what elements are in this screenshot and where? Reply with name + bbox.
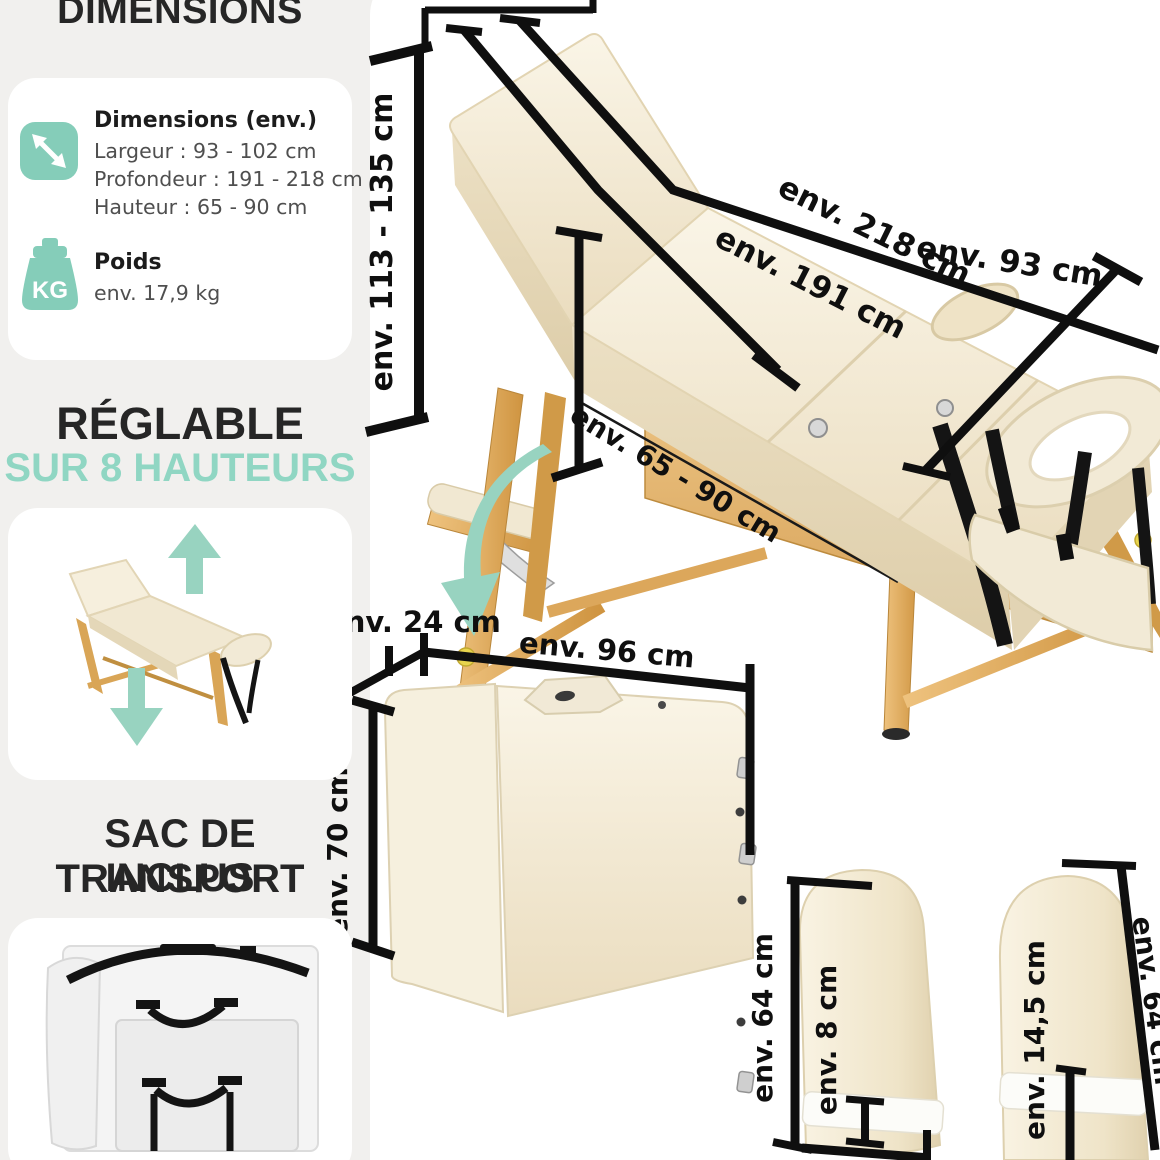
height-dimension-label: env. 113 - 135 cm (365, 93, 400, 392)
sidebar: DIMENSIONS Dimensions (env.) Largeur : 9… (0, 0, 362, 1160)
spec-hauteur: Hauteur : 65 - 90 cm (94, 193, 363, 221)
specs-box: Dimensions (env.) Largeur : 93 - 102 cm … (8, 78, 352, 360)
mini-table (70, 560, 275, 726)
metal-latch (809, 419, 827, 437)
spec-profondeur: Profondeur : 191 - 218 cm (94, 165, 363, 193)
adjustable-heading-line2: SUR 8 HAUTEURS (0, 446, 360, 491)
carry-bag-thumbnail (8, 918, 352, 1160)
adjustable-table-thumbnail (8, 508, 352, 780)
page-title: DIMENSIONS (0, 0, 360, 33)
adjustable-heading-line1: RÉGLABLE (0, 398, 360, 450)
down-arrow-icon (128, 668, 145, 714)
bag-photo-box (8, 918, 352, 1160)
bag-heading-line2: INCLUS (0, 856, 360, 901)
bolster-small-length-label: env. 64 cm (746, 933, 779, 1103)
weight-kg-icon: KG (20, 238, 80, 314)
strap-buckle (240, 946, 256, 955)
bolster-small-diameter-label: env. 8 cm (810, 965, 843, 1115)
folded-table-illustration (385, 676, 756, 1093)
leg-stretcher (548, 553, 766, 612)
latch-dot (658, 701, 666, 709)
bolster-large-diameter-label: env. 14,5 cm (1018, 940, 1051, 1140)
poids-heading: Poids (94, 250, 220, 275)
diagonal-resize-icon (20, 122, 78, 180)
down-arrow-icon (110, 708, 163, 746)
leg-foot-cap (882, 728, 910, 740)
up-arrow-icon (186, 552, 203, 594)
poids-value: env. 17,9 kg (94, 279, 220, 307)
folded-half-left (385, 684, 503, 1012)
spec-largeur: Largeur : 93 - 102 cm (94, 137, 363, 165)
folded-half-right (497, 686, 753, 1016)
metal-latch (937, 400, 953, 416)
rolled-bolster (47, 958, 100, 1149)
dimensions-heading: Dimensions (env.) (94, 108, 363, 133)
kg-icon-label: KG (32, 277, 68, 304)
adjustable-photo-box (8, 508, 352, 780)
up-arrow-icon (168, 524, 221, 558)
strap-pad (160, 944, 216, 955)
infographic-canvas: tectake (0, 0, 1160, 1160)
